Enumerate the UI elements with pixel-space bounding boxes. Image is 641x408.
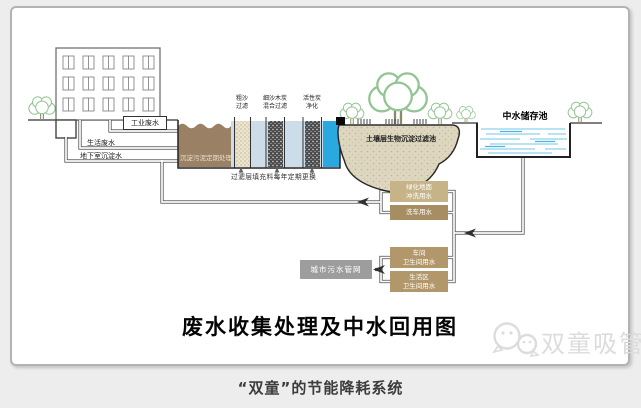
filter-replacement-note: 过滤层填充料每年定期更换 [231, 171, 316, 181]
industrial-wastewater-label: 工业废水 [123, 116, 167, 130]
watermark-text: 双童吸管 [541, 324, 641, 359]
filter-label-line: 净化 [306, 103, 318, 110]
reuse-box-line: 车间 [390, 249, 448, 258]
sewer-flow-arrow-icon [373, 265, 385, 274]
filter-label-activated-carbon: 活性炭 净化 [282, 95, 342, 110]
tree-icon [568, 102, 592, 123]
reuse-box-workshop-toilet: 车间 卫生间用水 [390, 247, 448, 268]
storage-tank [477, 123, 570, 157]
page-caption: “双童”的节能降耗系统 [0, 377, 641, 398]
reuse-box-car-wash: 洗车用水 [390, 205, 448, 220]
factory-building [56, 48, 160, 120]
clean-water-column [323, 121, 340, 167]
reuse-box-line: 绿化地面 [390, 183, 448, 192]
sedimentation-note-label: 沉淀污泥定期处理 [180, 152, 232, 162]
storage-pool-label: 中水储存池 [490, 109, 560, 122]
diagram-title: 废水收集处理及中水回用图 [60, 311, 580, 341]
pool-inlet [336, 117, 345, 125]
soil-pool-label: 土壤层生物沉淀过滤池 [366, 134, 436, 144]
sand-charcoal-column [268, 121, 283, 167]
reuse-box-line: 冲洗用水 [390, 192, 448, 201]
reuse-box-living-area-toilet: 生活区 卫生间用水 [390, 271, 448, 292]
city-sewer-box: 城市污水管网 [300, 260, 372, 279]
tree-icon-large [369, 73, 427, 124]
treatment-tank [178, 117, 340, 178]
tree-icon [457, 107, 476, 124]
reuse-box-greening: 绿化地面 冲洗用水 [390, 181, 448, 202]
grass-tufts [358, 119, 426, 124]
basement-water-label: 地下室沉淀水 [80, 151, 122, 161]
reuse-box-line: 卫生间用水 [390, 282, 448, 291]
tree-icon [428, 103, 452, 124]
reuse-box-line: 卫生间用水 [390, 258, 448, 267]
reuse-box-line: 生活区 [390, 273, 448, 282]
filter-label-line: 活性炭 [303, 95, 321, 102]
tree-icon [29, 97, 55, 120]
page: { "panel": { "title": "废水收集处理及中水回用图", "c… [0, 0, 641, 408]
domestic-wastewater-label: 生活废水 [87, 138, 115, 148]
activated-carbon-column [305, 121, 320, 167]
coarse-sand-column [236, 121, 249, 167]
reuse-box-line: 洗车用水 [390, 208, 448, 217]
basement-sump-tank [56, 120, 76, 138]
